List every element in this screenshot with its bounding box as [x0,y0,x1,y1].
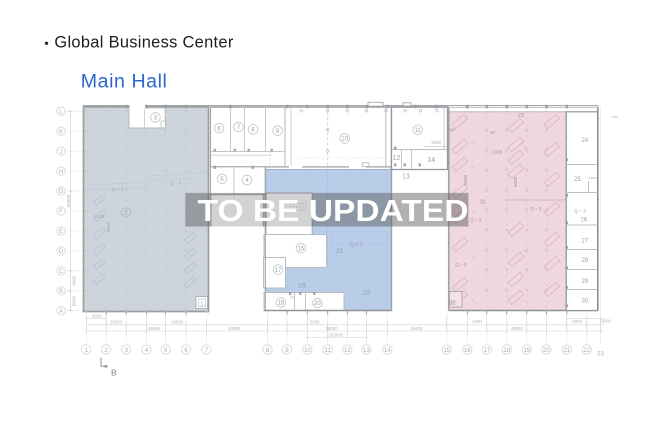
svg-text:TO BE UPDATED: TO BE UPDATED [198,193,469,228]
svg-text:Q = 3: Q = 3 [574,209,586,215]
svg-text:F: F [59,209,63,215]
svg-text:12: 12 [393,155,401,162]
svg-text:23: 23 [597,351,604,358]
svg-text:A: A [59,309,63,315]
svg-text:27: 27 [582,239,589,245]
svg-text:9: 9 [285,347,289,354]
svg-text:23: 23 [518,113,524,119]
svg-text:18000: 18000 [171,320,184,325]
svg-text:Q = 3: Q = 3 [112,187,124,192]
svg-text:Q = 3: Q = 3 [455,262,467,267]
svg-text:17: 17 [275,268,282,274]
svg-text:32: 32 [449,301,455,307]
svg-text:3000: 3000 [601,318,611,323]
svg-text:15: 15 [443,348,450,354]
svg-text:20: 20 [314,301,321,307]
svg-text:3: 3 [124,347,128,354]
svg-text:13: 13 [402,173,410,180]
svg-text:18: 18 [503,348,510,354]
svg-text:45°: 45° [490,130,497,135]
svg-text:4: 4 [145,347,149,354]
svg-text:B: B [111,367,117,377]
svg-text:19: 19 [523,348,530,354]
svg-text:1: 1 [201,302,204,308]
svg-text:153600: 153600 [328,333,343,338]
svg-text:6000: 6000 [72,275,77,286]
svg-text:10000: 10000 [228,326,241,331]
svg-text:2: 2 [124,211,127,217]
svg-text:1900: 1900 [431,140,442,145]
svg-text:6000: 6000 [72,295,77,306]
svg-text:60000: 60000 [66,194,71,207]
svg-text:29: 29 [582,279,589,285]
svg-text:2000: 2000 [310,320,320,325]
svg-text:6000: 6000 [513,176,518,187]
svg-text:36000: 36000 [325,326,338,331]
svg-text:Q = 3: Q = 3 [530,206,542,211]
svg-text:H: H [59,169,63,175]
svg-text:26: 26 [581,218,588,224]
svg-text:45000: 45000 [511,326,524,331]
svg-text:18: 18 [277,301,284,307]
svg-text:13: 13 [363,348,370,354]
svg-text:11: 11 [325,348,332,354]
svg-text:1: 1 [85,347,89,354]
svg-text:D: D [59,249,64,255]
svg-text:2: 2 [104,347,108,354]
svg-text:10: 10 [304,348,311,354]
svg-text:22: 22 [583,348,590,354]
svg-text:6: 6 [184,347,188,354]
svg-text:45°: 45° [450,128,457,133]
svg-text:36000: 36000 [148,326,161,331]
svg-text:11: 11 [414,128,421,134]
svg-text:21: 21 [336,248,344,255]
svg-text:6000: 6000 [92,313,102,318]
svg-text:14: 14 [384,348,391,354]
svg-text:E: E [59,229,63,235]
svg-text:Q = 3: Q = 3 [470,218,482,223]
svg-text:5: 5 [164,347,168,354]
svg-text:30: 30 [582,299,589,305]
svg-text:24: 24 [581,138,588,144]
svg-text:8: 8 [266,347,270,354]
svg-text:Main Hall: Main Hall [81,71,168,93]
svg-text:10: 10 [341,137,348,143]
svg-text:18400: 18400 [410,326,423,331]
svg-text:20: 20 [543,348,550,354]
svg-text:17: 17 [483,348,490,354]
svg-text:K: K [59,129,63,135]
svg-text:G: G [59,189,64,195]
svg-text:25: 25 [574,177,581,183]
svg-text:6000: 6000 [463,174,468,185]
svg-text:16: 16 [290,296,294,300]
svg-text:22: 22 [363,290,371,297]
svg-text:2100: 2100 [94,214,105,219]
svg-text:Q = 3: Q = 3 [170,181,182,186]
svg-text:6000: 6000 [572,319,582,324]
svg-text:Global Business Center: Global Business Center [54,34,233,52]
svg-text:J: J [60,149,63,155]
svg-text:1000: 1000 [472,319,482,324]
svg-text:7: 7 [205,347,209,354]
svg-text:18000: 18000 [110,320,123,325]
svg-text:6000: 6000 [106,221,111,232]
svg-text:28: 28 [582,258,589,264]
svg-text:1900: 1900 [492,150,503,155]
svg-text:C: C [59,269,64,275]
svg-text:B: B [59,289,63,295]
svg-text:15: 15 [297,246,304,252]
svg-text:Q = 3: Q = 3 [350,243,363,249]
svg-text:19: 19 [298,283,306,290]
svg-text:31: 31 [480,200,486,206]
svg-text:14: 14 [427,157,435,164]
svg-text:21: 21 [563,348,570,354]
svg-text:16: 16 [464,348,471,354]
svg-text:12: 12 [344,348,351,354]
